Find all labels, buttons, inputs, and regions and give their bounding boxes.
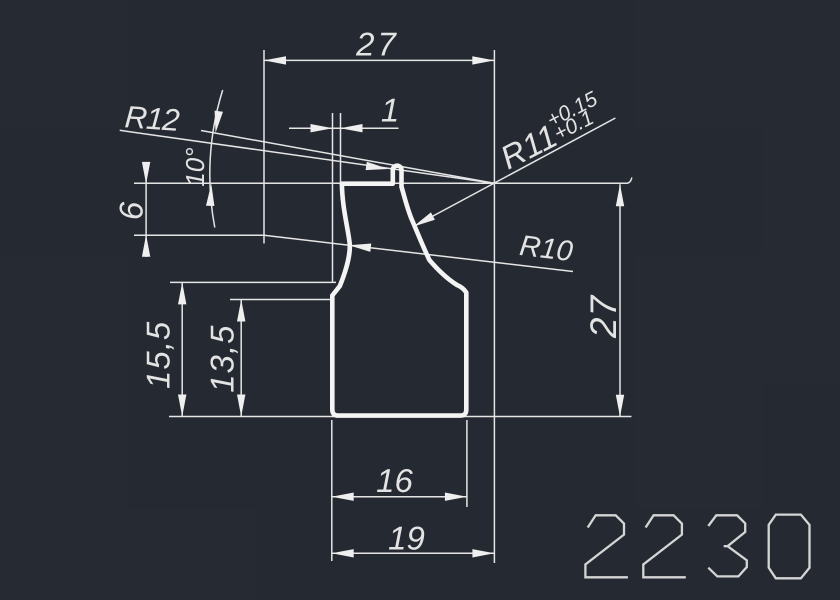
svg-text:13,5: 13,5 <box>204 325 241 393</box>
svg-text:R12: R12 <box>124 99 181 138</box>
svg-text:R10: R10 <box>518 230 575 268</box>
svg-text:10°: 10° <box>180 147 210 186</box>
svg-text:1: 1 <box>381 91 399 128</box>
svg-text:16: 16 <box>376 462 413 499</box>
svg-text:6: 6 <box>113 201 150 220</box>
svg-text:15,5: 15,5 <box>139 321 176 389</box>
svg-text:27: 27 <box>355 25 399 62</box>
svg-text:27: 27 <box>583 294 624 339</box>
svg-text:19: 19 <box>388 520 425 557</box>
